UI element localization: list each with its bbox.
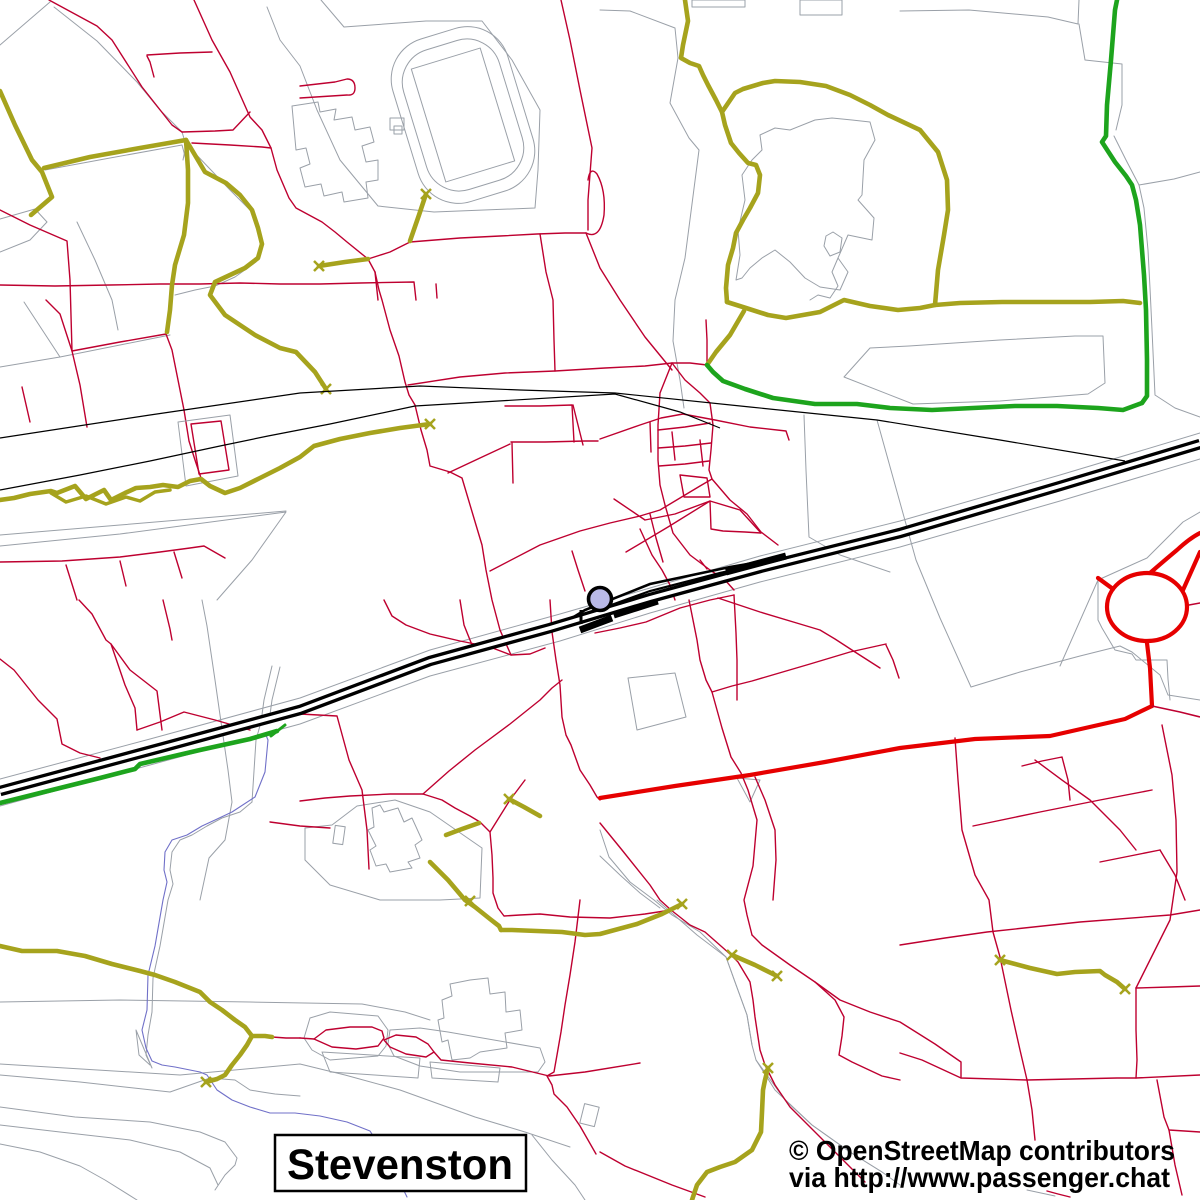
svg-text:Stevenston: Stevenston xyxy=(287,1141,513,1189)
svg-text:via http://www.passenger.chat: via http://www.passenger.chat xyxy=(789,1162,1170,1193)
